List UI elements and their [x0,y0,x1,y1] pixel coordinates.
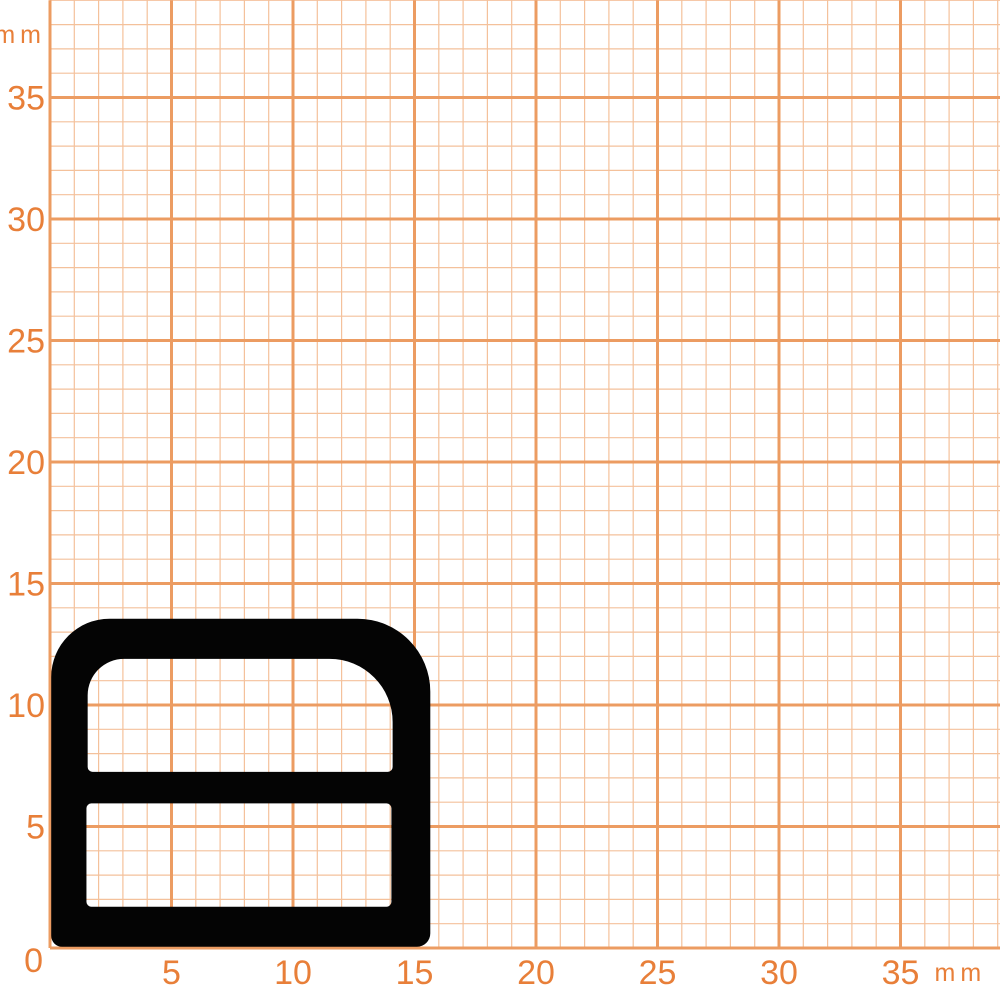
x-axis-tick-label: 35 [882,954,920,992]
y-axis-tick-label: 20 [7,444,45,482]
millimeter-paper-drawing: 353025201510551015202530350mmmm [0,0,1000,1000]
x-axis-tick-label: 10 [274,954,312,992]
origin-tick-label: 0 [24,942,43,980]
y-axis-tick-label: 30 [7,201,45,239]
x-axis-tick-label: 5 [162,954,181,992]
x-axis-tick-label: 15 [396,954,434,992]
x-axis-tick-label: 30 [760,954,798,992]
x-axis-unit-label: mm [935,959,987,987]
x-axis-tick-label: 20 [517,954,555,992]
y-axis-tick-label: 25 [7,323,45,361]
x-axis-tick-label: 25 [639,954,677,992]
paper-background [0,0,1000,1000]
y-axis-unit-label: mm [0,21,46,49]
y-axis-tick-label: 35 [7,80,45,118]
y-axis-tick-label: 10 [7,687,45,725]
y-axis-tick-label: 5 [26,809,45,847]
y-axis-tick-label: 15 [7,566,45,604]
millimeter-paper-page: 353025201510551015202530350mmmm [0,0,1000,1000]
